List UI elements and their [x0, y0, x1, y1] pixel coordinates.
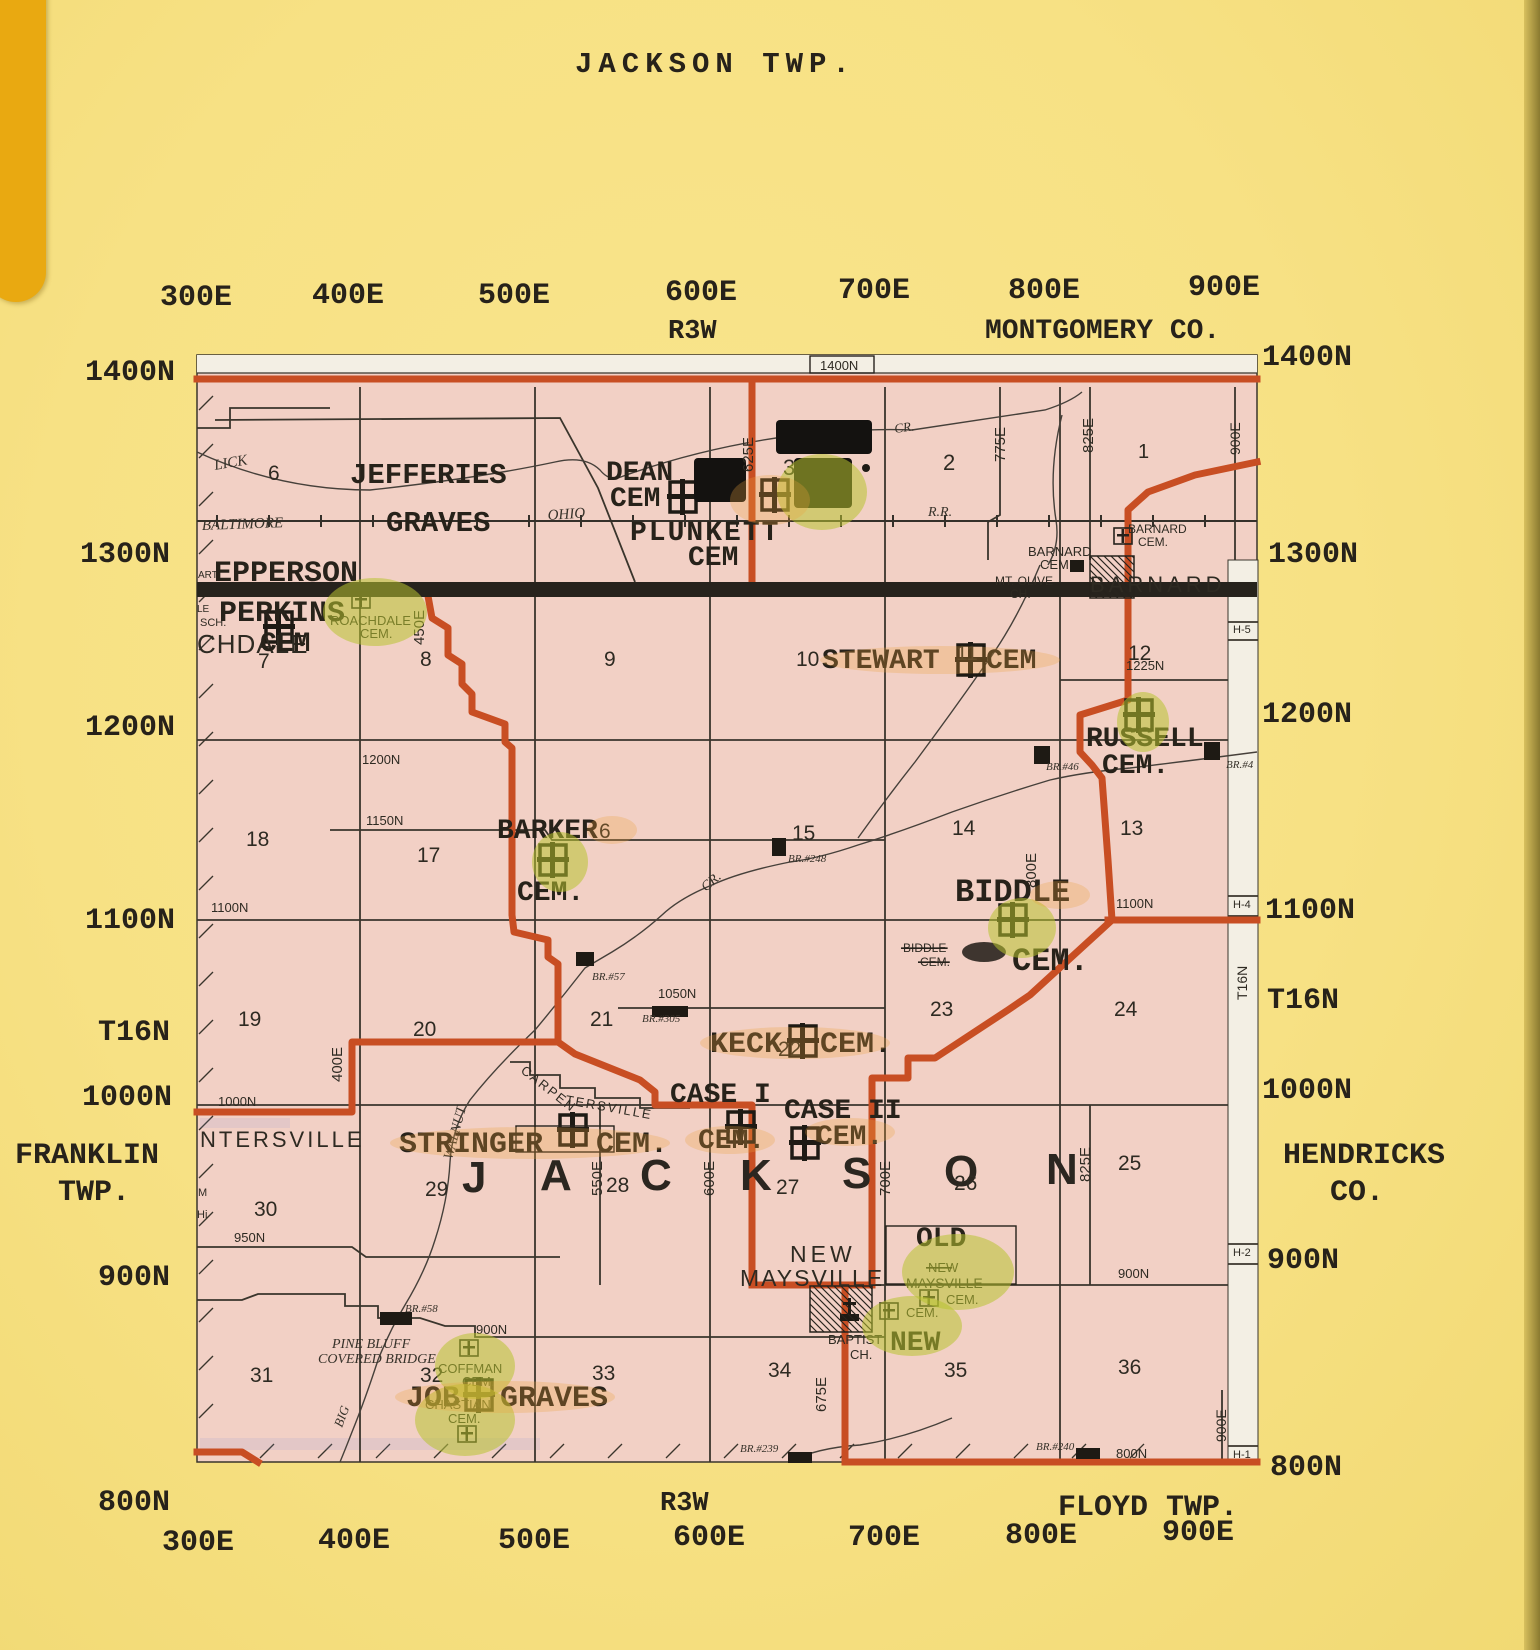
map-label: 29 [425, 1178, 448, 1201]
highlighter-orange-mark [587, 816, 637, 844]
highlighter-orange-mark [820, 646, 1060, 674]
map-label: BR.#57 [592, 971, 625, 983]
map-label: 6 [268, 462, 280, 485]
map-label: CR. [893, 418, 915, 436]
map-label: 675E [813, 1377, 830, 1412]
margin-label: T16N [1267, 984, 1339, 1018]
map-label: BR.#248 [788, 853, 827, 865]
margin-label: 1000N [82, 1081, 172, 1115]
map-label: GRAVES [386, 507, 490, 540]
map-label: EPPERSON [214, 557, 358, 591]
map-label: 24 [1114, 998, 1138, 1021]
margin-label: T16N [98, 1016, 170, 1050]
map-label: 900N [1118, 1266, 1149, 1281]
bridge-marker [1076, 1448, 1100, 1459]
map-label: 27 [776, 1176, 799, 1199]
map-label: 700E [877, 1161, 894, 1196]
map-label: 13 [1120, 817, 1143, 840]
margin-label: 600E [673, 1521, 745, 1555]
map-label: R.R. [927, 505, 952, 520]
map-label: BR.#58 [405, 1303, 438, 1315]
map-label: 1200N [362, 752, 400, 767]
map-label: CH. [850, 1347, 872, 1362]
margin-label: 300E [162, 1526, 234, 1560]
bridge-marker [576, 952, 594, 966]
margin-label: 800N [1270, 1451, 1342, 1485]
map-label: CEM. [1138, 535, 1168, 549]
margin-label: 1200N [1262, 698, 1352, 732]
highlighter-orange-mark [395, 1381, 615, 1413]
margin-label: 900N [1267, 1244, 1339, 1278]
map-label: MT. OLIVE [995, 574, 1053, 588]
map-label: CEM [1040, 557, 1069, 572]
map-label: 775E [992, 427, 1009, 462]
map-label: PINE BLUFF [331, 1337, 411, 1352]
map-label: 1000N [218, 1094, 256, 1109]
margin-label: 1400N [1262, 341, 1352, 375]
map-label: CH. [1010, 587, 1031, 601]
highlighter-orange-mark [390, 1127, 670, 1159]
map-label: 600E [701, 1161, 718, 1196]
map-label: Hi [197, 1209, 207, 1221]
map-label: 25 [1118, 1152, 1141, 1175]
margin-label: 800E [1008, 274, 1080, 308]
margin-label: 600E [665, 276, 737, 310]
bridge-marker [1070, 560, 1084, 572]
map-label: 800N [1116, 1446, 1147, 1461]
margin-label: 800N [98, 1486, 170, 1520]
highlighter-orange-mark [700, 1027, 890, 1059]
map-label: 36 [1118, 1356, 1141, 1379]
margin-label: 500E [478, 279, 550, 313]
margin-label: HENDRICKS [1283, 1139, 1445, 1173]
margin-label: 1300N [1268, 538, 1358, 572]
margin-label: 1300N [80, 538, 170, 572]
map-dot [862, 464, 870, 472]
map-label: 625E [740, 437, 757, 472]
map-label: 30 [254, 1198, 277, 1221]
margin-label: 1100N [1265, 894, 1355, 928]
map-label: BR.#4 [1226, 759, 1254, 771]
margin-label: 1000N [1262, 1074, 1352, 1108]
map-label: C [640, 1151, 672, 1200]
map-label: BALTIMORE [202, 515, 284, 534]
map-label: 1400N [820, 358, 858, 373]
map-label: 20 [413, 1018, 436, 1041]
map-label: K [740, 1151, 772, 1200]
map-label: H-4 [1233, 899, 1251, 911]
margin-label: TWP. [58, 1176, 130, 1210]
margin-label: 700E [848, 1521, 920, 1555]
margin-label: R3W [668, 317, 717, 347]
map-label: 18 [246, 828, 269, 851]
map-label: 34 [768, 1359, 792, 1382]
map-label: 950N [234, 1230, 265, 1245]
map-label: 825E [1080, 418, 1097, 453]
map-label: 400E [329, 1047, 346, 1082]
map-label: 2 [943, 450, 955, 475]
map-label: 1225N [1126, 658, 1164, 673]
map-label: 9 [604, 648, 616, 671]
map-label: 10 [796, 648, 819, 671]
map-label: 17 [417, 844, 440, 867]
highlighter-orange-mark [685, 1126, 775, 1154]
map-label: OHIO [547, 505, 586, 524]
bridge-marker [788, 1452, 812, 1463]
map-label: CASE I [670, 1080, 771, 1111]
map-label: 19 [238, 1008, 261, 1031]
margin-label: R3W [660, 1489, 709, 1519]
map-label: T16N [1234, 966, 1250, 1000]
map-label: 31 [250, 1364, 273, 1387]
map-label: 26 [954, 1172, 977, 1195]
right-margin-strip [1228, 560, 1258, 1462]
map-label: 35 [944, 1359, 967, 1382]
map-label: CEM [610, 484, 660, 515]
map-label: 825E [1077, 1147, 1094, 1182]
map-label: H-5 [1233, 624, 1251, 636]
map-label: H-1 [1233, 1449, 1251, 1461]
map-label: 7 [258, 650, 270, 673]
margin-label: MONTGOMERY CO. [985, 316, 1220, 347]
bridge-marker [1204, 742, 1220, 760]
map-label: 33 [592, 1362, 615, 1385]
map-label: BR.#46 [1046, 761, 1079, 773]
highlighter-green-mark [532, 832, 588, 892]
margin-label: 900E [1188, 271, 1260, 305]
map-label: NEW [790, 1241, 856, 1267]
top-margin-strip [197, 355, 1257, 373]
margin-label: JACKSON TWP. [575, 48, 856, 81]
map-label: 1150N [366, 813, 403, 828]
highlighter-orange-mark [805, 1118, 895, 1146]
map-label: 28 [606, 1174, 629, 1197]
highlighter-green-mark [1117, 692, 1169, 752]
redaction-mark [776, 420, 872, 454]
map-label: BR.#305 [642, 1013, 681, 1025]
map-label: 1100N [211, 900, 248, 915]
highlighter-green-mark [323, 578, 427, 646]
map-label: NTERSVILLE [200, 1127, 365, 1152]
map-label: BR.#240 [1036, 1441, 1075, 1453]
map-label: 900E [1227, 422, 1243, 455]
map-label: 21 [590, 1008, 613, 1031]
jackson-township-map: JACKSON TWP.300E400E500E600E700E800E900E… [0, 0, 1540, 1650]
map-label: 1 [1138, 441, 1149, 463]
map-label: 550E [589, 1161, 606, 1196]
map-label: CEM. [1102, 751, 1169, 782]
map-label: S [842, 1149, 871, 1198]
highlighter-orange-mark [1030, 881, 1090, 909]
map-label: LE [197, 604, 210, 615]
highlighter-orange-mark [730, 475, 810, 525]
map-label: 8 [420, 648, 432, 671]
margin-label: 1200N [85, 711, 175, 745]
map-label: 15 [792, 822, 815, 845]
map-label: H-2 [1233, 1247, 1251, 1259]
map-label: 1100N [1116, 896, 1153, 911]
map-label: COVERED BRIDGE [318, 1352, 436, 1367]
map-label: M [198, 1187, 207, 1199]
margin-label: CO. [1330, 1176, 1384, 1210]
map-label: BARNARD [1090, 572, 1226, 597]
margin-label: 300E [160, 281, 232, 315]
margin-label: 700E [838, 274, 910, 308]
map-label: BR.#239 [740, 1443, 779, 1455]
margin-label: 800E [1005, 1519, 1077, 1553]
map-label: MAYSVILLE [740, 1265, 884, 1291]
bridge-marker [772, 838, 786, 856]
map-label: 1050N [658, 986, 696, 1001]
margin-label: 500E [498, 1524, 570, 1558]
map-label: N [1046, 1145, 1078, 1194]
map-label: CEM [688, 543, 738, 574]
map-label: 23 [930, 998, 953, 1021]
map-label: 14 [952, 817, 976, 840]
margin-label: 900N [98, 1261, 170, 1295]
margin-label: FRANKLIN [15, 1139, 159, 1173]
margin-label: 1100N [85, 904, 175, 938]
map-label: JEFFERIES [350, 459, 507, 492]
map-label: 900E [1213, 1409, 1229, 1442]
map-label: BARNARD [1128, 522, 1187, 536]
scanned-map-page: JACKSON TWP.300E400E500E600E700E800E900E… [0, 0, 1540, 1650]
margin-label: 400E [318, 1524, 390, 1558]
margin-label: 400E [312, 279, 384, 313]
map-label: J [462, 1153, 486, 1202]
margin-label: 900E [1162, 1516, 1234, 1550]
margin-label: 1400N [85, 356, 175, 390]
highlighter-green-mark [862, 1296, 962, 1356]
